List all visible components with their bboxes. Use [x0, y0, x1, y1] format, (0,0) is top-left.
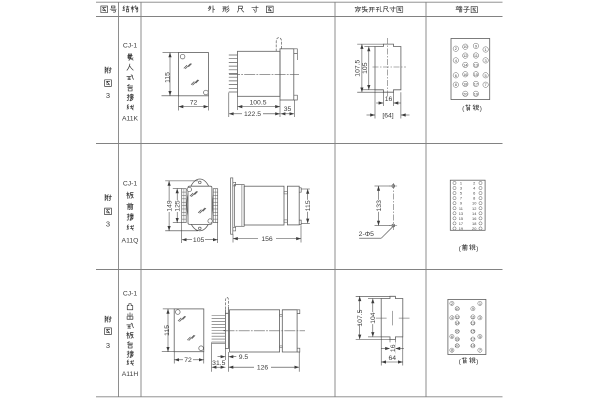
svg-text:3: 3 — [479, 315, 481, 320]
svg-text:8: 8 — [451, 348, 453, 353]
svg-text:16: 16 — [463, 72, 467, 77]
svg-text:CJ-1: CJ-1 — [123, 290, 138, 297]
svg-text:19: 19 — [471, 343, 475, 348]
svg-text:133: 133 — [376, 200, 383, 212]
svg-text:35: 35 — [284, 106, 292, 113]
svg-text:5: 5 — [485, 73, 487, 78]
svg-text:7: 7 — [479, 348, 481, 353]
svg-text:CJ-1: CJ-1 — [123, 180, 138, 187]
svg-text:19: 19 — [474, 91, 478, 96]
svg-text:107.5: 107.5 — [357, 309, 364, 326]
svg-text:18: 18 — [455, 337, 459, 342]
svg-text:6: 6 — [451, 334, 453, 339]
svg-text:8: 8 — [455, 82, 457, 87]
svg-text:17: 17 — [474, 81, 478, 86]
svg-text:5: 5 — [479, 334, 481, 339]
svg-text:12: 12 — [463, 53, 467, 58]
svg-text:3: 3 — [106, 91, 110, 100]
svg-text:115: 115 — [305, 200, 312, 211]
svg-text:): ) — [476, 245, 478, 252]
svg-text:15: 15 — [474, 72, 478, 77]
svg-text:18: 18 — [463, 81, 467, 86]
svg-text:15: 15 — [471, 329, 475, 334]
svg-text:125: 125 — [175, 200, 182, 212]
svg-text:[64]: [64] — [382, 112, 393, 119]
svg-text:72: 72 — [190, 100, 198, 107]
svg-text:2-Φ5: 2-Φ5 — [359, 231, 374, 238]
svg-text:): ) — [476, 358, 478, 365]
svg-text:104: 104 — [370, 312, 377, 324]
svg-text:115: 115 — [164, 325, 171, 336]
svg-text:(: ( — [462, 106, 465, 113]
svg-text:13: 13 — [474, 62, 478, 67]
svg-text:9.5: 9.5 — [239, 354, 249, 361]
svg-text:3: 3 — [485, 58, 487, 63]
svg-text:156: 156 — [261, 236, 273, 243]
svg-text:12: 12 — [455, 314, 459, 319]
svg-text:9: 9 — [475, 43, 477, 48]
svg-text:(: ( — [459, 245, 462, 252]
svg-text:): ) — [480, 106, 482, 113]
svg-text:16: 16 — [385, 96, 393, 103]
svg-text:2: 2 — [455, 46, 457, 51]
svg-text:122.5: 122.5 — [244, 111, 261, 118]
svg-text:105: 105 — [193, 237, 205, 244]
svg-text:1: 1 — [479, 301, 481, 306]
svg-text:(: ( — [459, 358, 462, 365]
svg-text:100.5: 100.5 — [249, 100, 266, 107]
svg-text:16: 16 — [455, 329, 459, 334]
svg-text:3: 3 — [106, 219, 110, 228]
svg-text:4: 4 — [455, 58, 458, 63]
svg-text:19: 19 — [459, 226, 463, 231]
svg-text:1: 1 — [485, 47, 487, 52]
svg-text:CJ-1: CJ-1 — [123, 42, 138, 49]
svg-text:3: 3 — [106, 341, 110, 350]
svg-text:11: 11 — [471, 314, 475, 319]
svg-text:31.5: 31.5 — [212, 360, 225, 367]
svg-text:11: 11 — [474, 53, 478, 58]
svg-text:A11Q: A11Q — [122, 238, 139, 245]
svg-text:107.5: 107.5 — [354, 59, 361, 76]
svg-text:7: 7 — [485, 82, 487, 87]
svg-text:64: 64 — [389, 355, 397, 362]
svg-text:115: 115 — [164, 72, 171, 83]
svg-text:A11H: A11H — [122, 371, 139, 378]
svg-text:16: 16 — [390, 344, 397, 352]
svg-text:2: 2 — [451, 301, 453, 306]
svg-text:A11K: A11K — [122, 115, 139, 122]
svg-text:149: 149 — [167, 200, 174, 212]
svg-text:126: 126 — [257, 365, 269, 372]
svg-text:6: 6 — [455, 73, 457, 78]
svg-text:9: 9 — [472, 306, 474, 311]
svg-text:17: 17 — [471, 337, 475, 342]
svg-text:72: 72 — [184, 357, 192, 364]
svg-text:105: 105 — [362, 62, 369, 74]
svg-text:13: 13 — [471, 320, 475, 325]
